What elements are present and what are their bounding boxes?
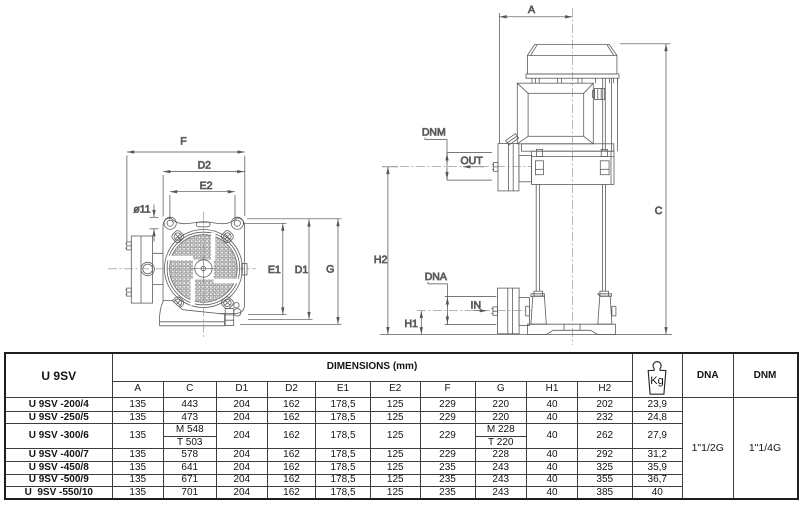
svg-text:IN: IN [471, 299, 482, 311]
svg-text:ø11: ø11 [133, 204, 150, 216]
svg-text:OUT: OUT [461, 155, 484, 167]
svg-text:F: F [180, 136, 186, 148]
svg-text:D2: D2 [198, 160, 212, 172]
svg-text:H2: H2 [374, 254, 388, 266]
svg-text:C: C [655, 205, 663, 217]
svg-text:E2: E2 [200, 180, 213, 192]
svg-text:E1: E1 [268, 264, 281, 276]
svg-text:DNA: DNA [425, 271, 447, 283]
svg-text:DNM: DNM [422, 127, 446, 139]
svg-text:D1: D1 [295, 264, 309, 276]
svg-text:G: G [326, 264, 334, 276]
svg-text:Kg: Kg [651, 375, 664, 387]
svg-text:A: A [528, 4, 535, 16]
svg-text:H1: H1 [404, 318, 418, 330]
